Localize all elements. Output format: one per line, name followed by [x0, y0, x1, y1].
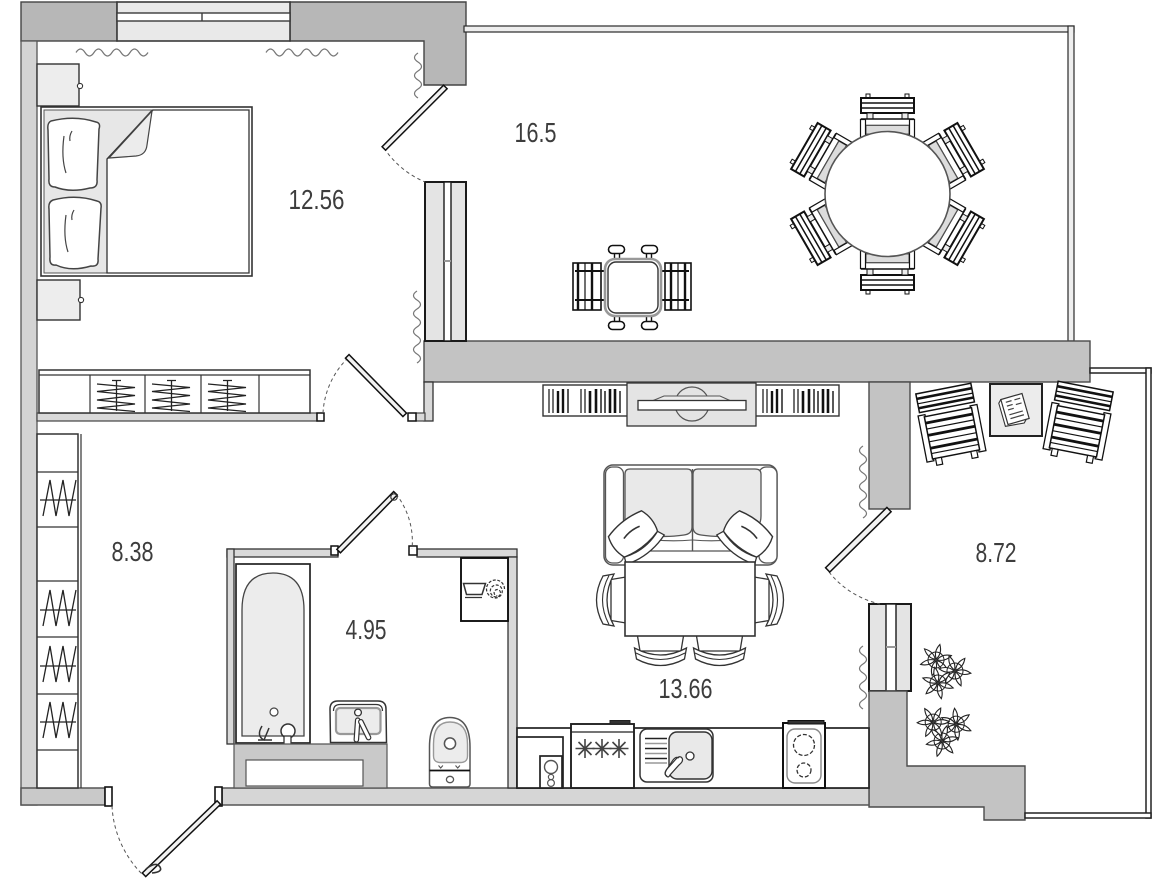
svg-text:4.95: 4.95 [346, 614, 387, 645]
svg-text:8.38: 8.38 [112, 536, 154, 567]
svg-text:12.56: 12.56 [289, 184, 345, 215]
svg-text:16.5: 16.5 [515, 117, 557, 148]
svg-text:8.72: 8.72 [976, 537, 1017, 568]
svg-text:13.66: 13.66 [659, 673, 713, 704]
